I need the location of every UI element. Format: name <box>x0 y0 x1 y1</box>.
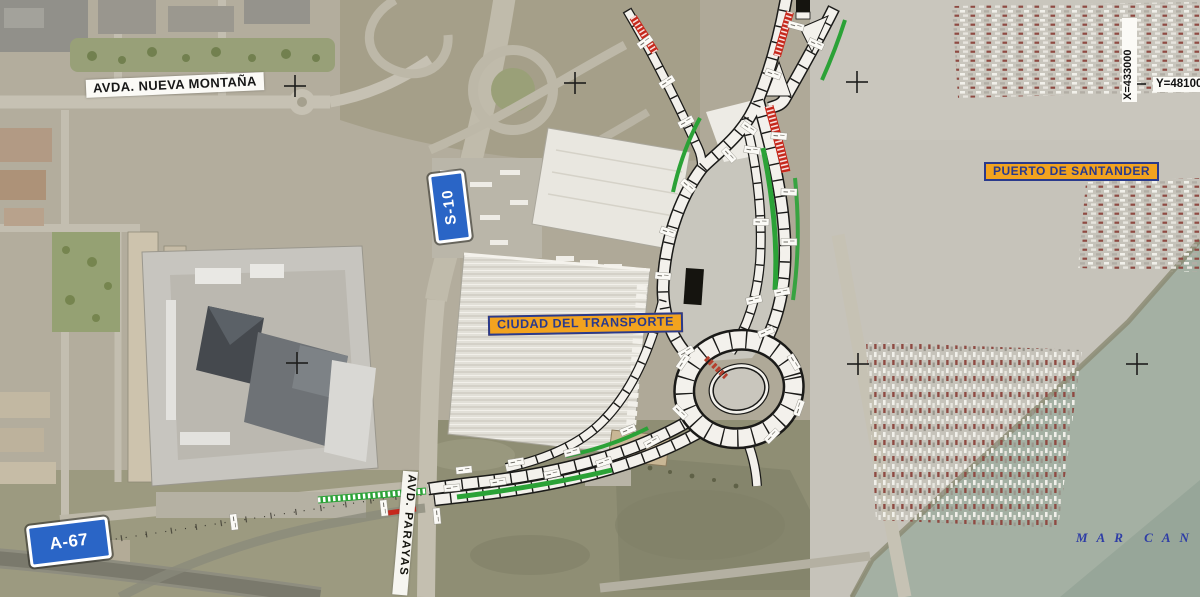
map-canvas: AVDA. NUEVA MONTAÑA S-10 CIUDAD DEL TRAN… <box>0 0 1200 597</box>
label-ciudad-del-transporte: CIUDAD DEL TRANSPORTE <box>488 312 683 335</box>
grid-coordinate-x-label: X=433000 <box>1122 18 1137 102</box>
label-mar-cantabrico: MAR CAN <box>1076 531 1198 545</box>
grid-coordinate-y-label: Y=481000 <box>1153 77 1200 92</box>
label-puerto-de-santander: PUERTO DE SANTANDER <box>984 162 1159 181</box>
